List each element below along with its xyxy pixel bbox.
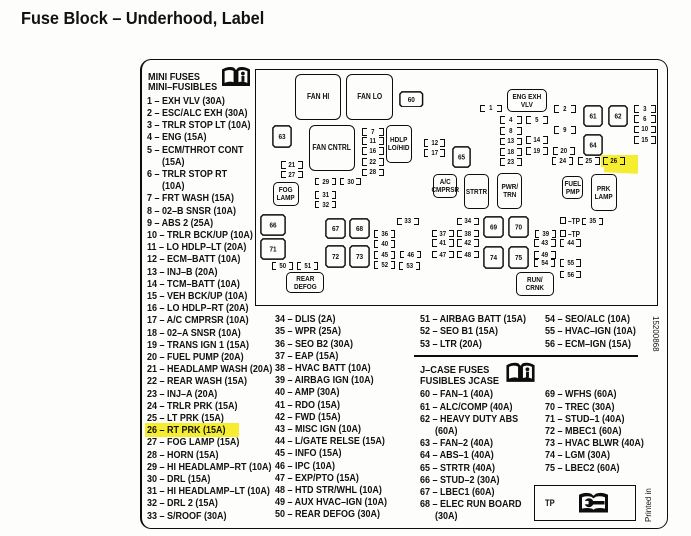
svg-text:63: 63 [278,134,285,141]
svg-text:66: 66 [269,222,276,229]
svg-text:60: 60 [408,96,415,103]
svg-text:65: 65 [458,154,465,161]
svg-text:64: 64 [589,142,596,149]
svg-text:61: 61 [589,113,596,120]
svg-text:69: 69 [490,224,497,231]
svg-text:72: 72 [332,254,339,261]
svg-text:68: 68 [356,226,363,233]
svg-text:75: 75 [515,255,522,262]
svg-text:70: 70 [515,224,522,231]
svg-text:62: 62 [614,113,621,120]
svg-text:71: 71 [269,246,276,253]
svg-text:67: 67 [332,226,339,233]
svg-text:74: 74 [490,255,497,262]
svg-text:73: 73 [356,254,363,261]
